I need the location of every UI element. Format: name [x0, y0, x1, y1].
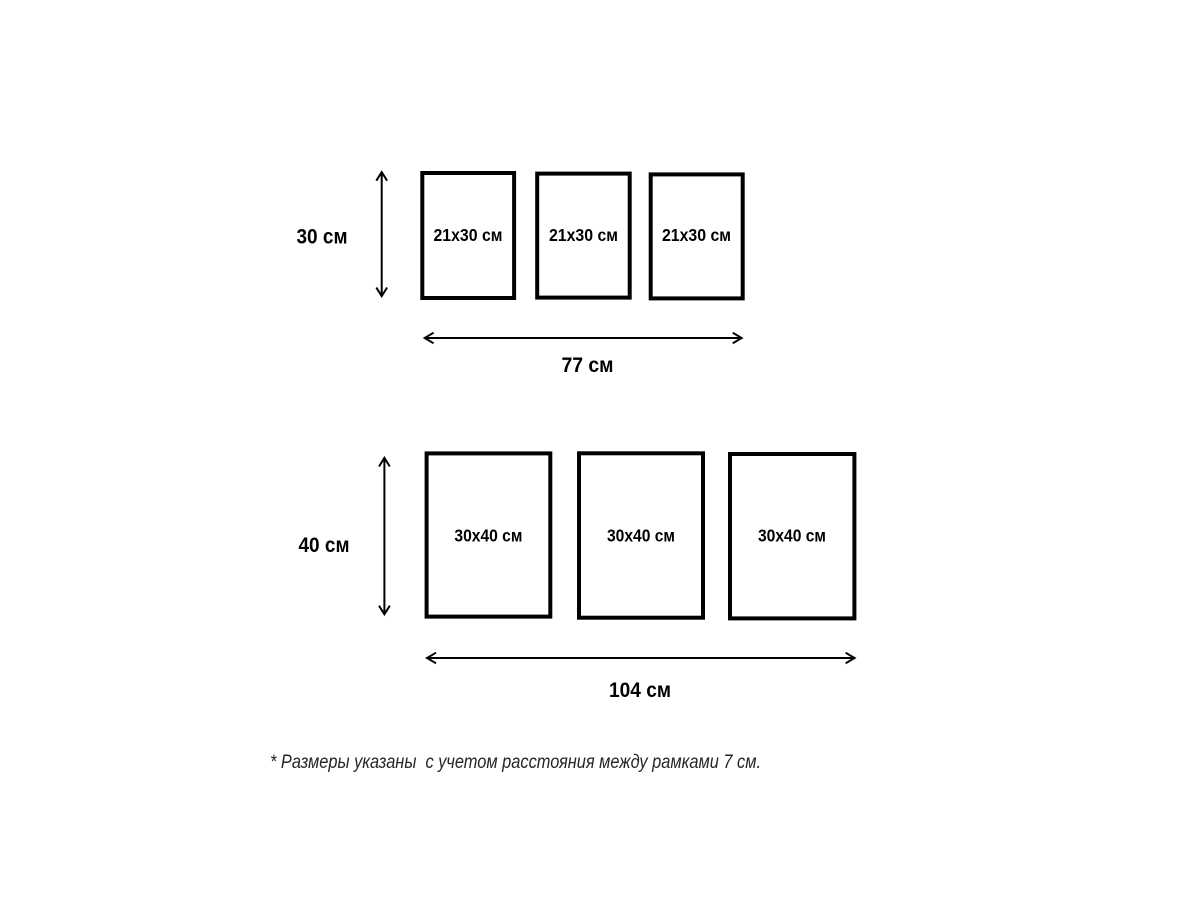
svg-text:21x30 см: 21x30 см	[434, 225, 503, 245]
svg-text:30x40 см: 30x40 см	[758, 526, 826, 546]
svg-text:104 см: 104 см	[609, 678, 671, 702]
svg-text:21x30 см: 21x30 см	[662, 225, 731, 245]
svg-text:* Размеры указаны с учетом ра: * Размеры указаны с учетом расстояния ме…	[270, 751, 761, 773]
svg-text:30x40 см: 30x40 см	[454, 526, 522, 546]
svg-text:40 см: 40 см	[299, 533, 350, 557]
svg-text:30 см: 30 см	[297, 225, 348, 249]
svg-text:30x40 см: 30x40 см	[607, 526, 675, 546]
svg-text:77 см: 77 см	[562, 353, 614, 377]
svg-text:21x30 см: 21x30 см	[549, 225, 618, 245]
